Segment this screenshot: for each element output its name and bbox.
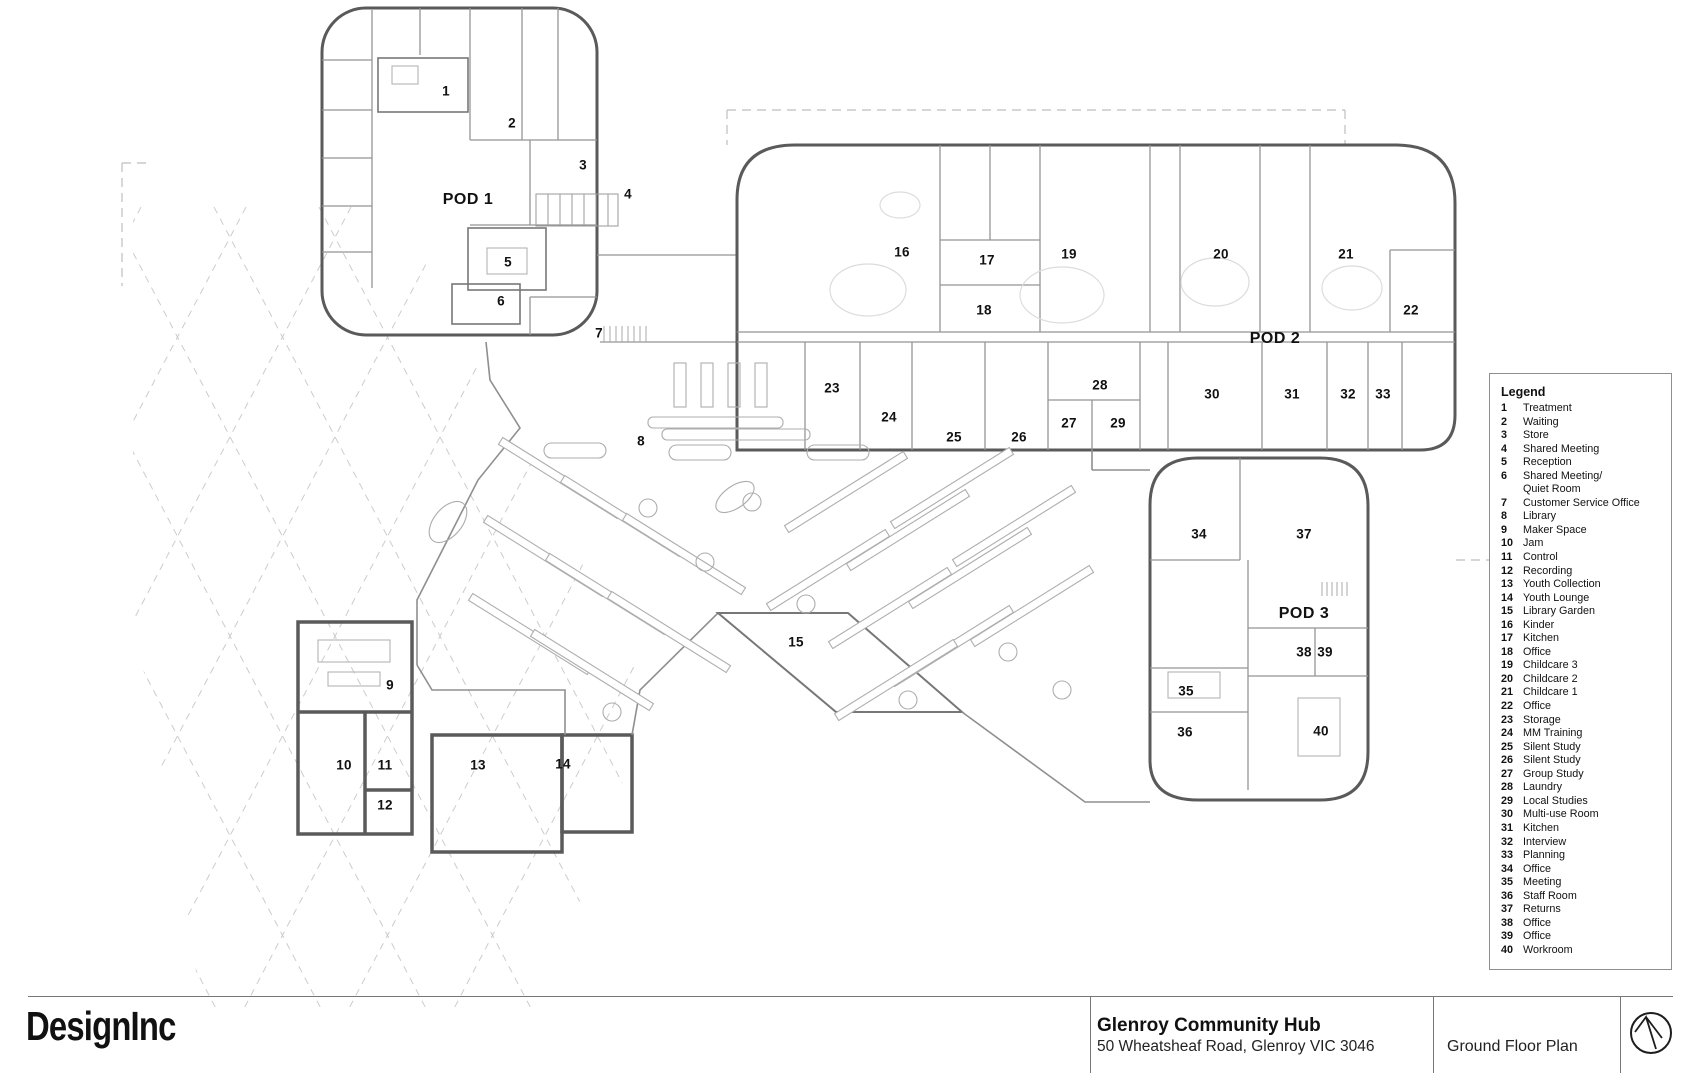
- legend-entry: 12Recording: [1501, 565, 1665, 579]
- legend-entry: 34Office: [1501, 863, 1665, 877]
- room-number-label: 27: [1061, 416, 1076, 431]
- legend-entry-number: 20: [1501, 673, 1523, 687]
- legend-entry: 21Childcare 1: [1501, 686, 1665, 700]
- room-number-label: 7: [595, 326, 603, 341]
- library-shelving: [469, 438, 1094, 721]
- legend-entry: 39Office: [1501, 930, 1665, 944]
- room-number-label: 38: [1296, 645, 1311, 660]
- legend-entry: 5Reception: [1501, 456, 1665, 470]
- room-number-label: 1: [442, 84, 450, 99]
- legend-entry-label: Recording: [1523, 565, 1572, 579]
- room-number-label: 28: [1092, 378, 1107, 393]
- sheet-name: Ground Floor Plan: [1447, 1038, 1578, 1056]
- room-number-label: 20: [1213, 247, 1228, 262]
- legend-entry-number: 27: [1501, 768, 1523, 782]
- room-number-label: 5: [504, 255, 512, 270]
- legend-entry: 27Group Study: [1501, 768, 1665, 782]
- legend-entry: 32Interview: [1501, 836, 1665, 850]
- legend-entry: 6Shared Meeting/ Quiet Room: [1501, 470, 1665, 497]
- room-number-label: 9: [386, 678, 394, 693]
- legend-entry: 1Treatment: [1501, 402, 1665, 416]
- legend-entry-number: 12: [1501, 565, 1523, 579]
- legend-entry-label: Office: [1523, 917, 1551, 931]
- legend-entry-label: Local Studies: [1523, 795, 1588, 809]
- room-number-label: 3: [579, 158, 587, 173]
- room-number-label: 10: [336, 758, 351, 773]
- legend-entry: 9Maker Space: [1501, 524, 1665, 538]
- room-number-label: 23: [824, 381, 839, 396]
- firm-logo: DesignInc: [26, 1003, 176, 1050]
- legend-entry-label: Childcare 3: [1523, 659, 1578, 673]
- room-number-label: 24: [881, 410, 896, 425]
- legend-entry-number: 26: [1501, 754, 1523, 768]
- legend-entry: 38Office: [1501, 917, 1665, 931]
- room-number-label: 25: [946, 430, 961, 445]
- legend-entry-number: 21: [1501, 686, 1523, 700]
- legend-entry-label: Office: [1523, 930, 1551, 944]
- room-number-label: 18: [976, 303, 991, 318]
- legend-entry-number: 15: [1501, 605, 1523, 619]
- legend-entry: 24MM Training: [1501, 727, 1665, 741]
- legend-entry-label: Kitchen: [1523, 822, 1559, 836]
- room-number-label: 39: [1317, 645, 1332, 660]
- room-number-label: 37: [1296, 527, 1311, 542]
- legend-entry-number: 5: [1501, 456, 1523, 470]
- room-number-label: 35: [1178, 684, 1193, 699]
- legend-entry-label: Office: [1523, 646, 1551, 660]
- legend-entry: 33Planning: [1501, 849, 1665, 863]
- legend-entry: 35Meeting: [1501, 876, 1665, 890]
- north-arrow-icon: [1631, 1013, 1671, 1053]
- legend-entry-label: Youth Lounge: [1523, 592, 1589, 606]
- legend-entry-number: 16: [1501, 619, 1523, 633]
- room-number-label: 31: [1284, 387, 1299, 402]
- title-block-rule: [28, 996, 1673, 997]
- legend-entry: 28Laundry: [1501, 781, 1665, 795]
- legend-entry-label: Customer Service Office: [1523, 497, 1640, 511]
- legend-entry: 31Kitchen: [1501, 822, 1665, 836]
- legend-entry-number: 35: [1501, 876, 1523, 890]
- legend-entry-label: Storage: [1523, 714, 1561, 728]
- legend-items: 1Treatment2Waiting3Store4Shared Meeting5…: [1501, 402, 1665, 957]
- legend-entry: 25Silent Study: [1501, 741, 1665, 755]
- legend-entry-label: Control: [1523, 551, 1558, 565]
- room-number-label: 21: [1338, 247, 1353, 262]
- legend-entry-number: 18: [1501, 646, 1523, 660]
- legend-entry-label: Laundry: [1523, 781, 1562, 795]
- legend-entry: 15Library Garden: [1501, 605, 1665, 619]
- room-number-label: 30: [1204, 387, 1219, 402]
- legend-entry-label: Childcare 2: [1523, 673, 1578, 687]
- legend-entry-number: 9: [1501, 524, 1523, 538]
- legend-entry-label: Meeting: [1523, 876, 1561, 890]
- room-number-label: 14: [555, 757, 570, 772]
- legend-entry-number: 2: [1501, 416, 1523, 430]
- pod3-walls: [1150, 458, 1368, 800]
- legend-entry: 37Returns: [1501, 903, 1665, 917]
- meeting-table: [536, 194, 618, 226]
- legend-entry-number: 13: [1501, 578, 1523, 592]
- room-number-label: 4: [624, 187, 632, 202]
- legend-entry-label: Staff Room: [1523, 890, 1577, 904]
- legend-entry-number: 29: [1501, 795, 1523, 809]
- legend-entry-label: Kinder: [1523, 619, 1554, 633]
- room-number-label: 13: [470, 758, 485, 773]
- legend-entry-label: Workroom: [1523, 944, 1573, 958]
- legend-entry-number: 14: [1501, 592, 1523, 606]
- legend-entry-label: Office: [1523, 863, 1551, 877]
- legend-entry-number: 19: [1501, 659, 1523, 673]
- legend-entry: 40Workroom: [1501, 944, 1665, 958]
- legend-entry-number: 8: [1501, 510, 1523, 524]
- legend-entry-label: MM Training: [1523, 727, 1582, 741]
- legend-entry: 7Customer Service Office: [1501, 497, 1665, 511]
- legend-entry-number: 32: [1501, 836, 1523, 850]
- legend-entry-number: 11: [1501, 551, 1523, 565]
- legend-entry-number: 30: [1501, 808, 1523, 822]
- legend-entry: 10Jam: [1501, 537, 1665, 551]
- room-number-label: 29: [1110, 416, 1125, 431]
- project-name: Glenroy Community Hub: [1097, 1015, 1321, 1037]
- legend-entry: 3Store: [1501, 429, 1665, 443]
- room-number-label: 17: [979, 253, 994, 268]
- legend-entry-label: Library Garden: [1523, 605, 1595, 619]
- legend-entry-label: Silent Study: [1523, 754, 1581, 768]
- legend-entry: 2Waiting: [1501, 416, 1665, 430]
- legend-entry: 23Storage: [1501, 714, 1665, 728]
- legend-entry-number: 6: [1501, 470, 1523, 497]
- legend-entry: 19Childcare 3: [1501, 659, 1665, 673]
- legend-entry: 17Kitchen: [1501, 632, 1665, 646]
- legend-entry-label: Office: [1523, 700, 1551, 714]
- legend-entry-label: Planning: [1523, 849, 1565, 863]
- legend-entry-label: Youth Collection: [1523, 578, 1601, 592]
- room-number-label: 8: [637, 434, 645, 449]
- title-block-divider: [1090, 996, 1091, 1073]
- legend-entry-number: 17: [1501, 632, 1523, 646]
- room-number-label: 2: [508, 116, 516, 131]
- room-number-label: 12: [377, 798, 392, 813]
- legend-entry-label: Store: [1523, 429, 1549, 443]
- legend-entry-number: 10: [1501, 537, 1523, 551]
- room-number-label: 11: [378, 758, 393, 773]
- legend-entry-number: 39: [1501, 930, 1523, 944]
- title-block-divider: [1433, 996, 1434, 1073]
- legend-entry: 8Library: [1501, 510, 1665, 524]
- room-number-label: 19: [1061, 247, 1076, 262]
- legend-entry-number: 33: [1501, 849, 1523, 863]
- legend-entry: 13Youth Collection: [1501, 578, 1665, 592]
- legend-entry-number: 37: [1501, 903, 1523, 917]
- entry-link: [536, 194, 737, 342]
- legend-entry: 29Local Studies: [1501, 795, 1665, 809]
- legend-entry-number: 28: [1501, 781, 1523, 795]
- legend-entry-label: Kitchen: [1523, 632, 1559, 646]
- legend-entry-number: 34: [1501, 863, 1523, 877]
- legend-entry-label: Shared Meeting/ Quiet Room: [1523, 470, 1602, 497]
- legend-entry-label: Returns: [1523, 903, 1561, 917]
- floor-plan-drawing: [0, 0, 1700, 1073]
- pod2-walls: [737, 145, 1455, 450]
- room-number-label: 22: [1403, 303, 1418, 318]
- room-number-label: 32: [1340, 387, 1355, 402]
- legend-entry-label: Group Study: [1523, 768, 1584, 782]
- legend-entry-number: 23: [1501, 714, 1523, 728]
- room-number-label: 34: [1191, 527, 1206, 542]
- legend-entry-label: Reception: [1523, 456, 1572, 470]
- legend-entry-number: 31: [1501, 822, 1523, 836]
- legend-entry-number: 22: [1501, 700, 1523, 714]
- legend-title: Legend: [1501, 385, 1665, 399]
- pod1-walls: [322, 8, 597, 335]
- title-block-divider: [1620, 996, 1621, 1073]
- room-number-label: 40: [1313, 724, 1328, 739]
- legend-box: Legend 1Treatment2Waiting3Store4Shared M…: [1489, 373, 1672, 970]
- legend-entry: 22Office: [1501, 700, 1665, 714]
- legend-entry: 20Childcare 2: [1501, 673, 1665, 687]
- concourse-glazing: [417, 342, 1150, 802]
- legend-entry: 4Shared Meeting: [1501, 443, 1665, 457]
- kinder-play-blobs: [830, 192, 1382, 323]
- legend-entry-number: 1: [1501, 402, 1523, 416]
- legend-entry: 11Control: [1501, 551, 1665, 565]
- legend-entry-number: 3: [1501, 429, 1523, 443]
- legend-entry-label: Silent Study: [1523, 741, 1581, 755]
- pod-label: POD 1: [443, 191, 494, 209]
- legend-entry-label: Library: [1523, 510, 1556, 524]
- floor-plan-sheet: 1234567891011121314151617181920212223242…: [0, 0, 1700, 1073]
- pod-label: POD 3: [1279, 605, 1330, 623]
- legend-entry: 16Kinder: [1501, 619, 1665, 633]
- legend-entry-number: 25: [1501, 741, 1523, 755]
- legend-entry-label: Shared Meeting: [1523, 443, 1599, 457]
- legend-entry: 26Silent Study: [1501, 754, 1665, 768]
- room-number-label: 36: [1177, 725, 1192, 740]
- legend-entry: 30Multi-use Room: [1501, 808, 1665, 822]
- project-address: 50 Wheatsheaf Road, Glenroy VIC 3046: [1097, 1038, 1374, 1056]
- legend-entry-label: Treatment: [1523, 402, 1572, 416]
- legend-entry-number: 4: [1501, 443, 1523, 457]
- legend-entry-label: Jam: [1523, 537, 1543, 551]
- legend-entry-number: 38: [1501, 917, 1523, 931]
- legend-entry-number: 36: [1501, 890, 1523, 904]
- legend-entry-label: Interview: [1523, 836, 1566, 850]
- legend-entry: 18Office: [1501, 646, 1665, 660]
- legend-entry-number: 24: [1501, 727, 1523, 741]
- room-number-label: 6: [497, 294, 505, 309]
- legend-entry-label: Maker Space: [1523, 524, 1587, 538]
- legend-entry: 36Staff Room: [1501, 890, 1665, 904]
- legend-entry-number: 40: [1501, 944, 1523, 958]
- legend-entry-label: Waiting: [1523, 416, 1559, 430]
- room-number-label: 15: [788, 635, 803, 650]
- pod-label: POD 2: [1250, 330, 1301, 348]
- legend-entry-label: Multi-use Room: [1523, 808, 1599, 822]
- room-number-label: 33: [1375, 387, 1390, 402]
- room-number-label: 26: [1011, 430, 1026, 445]
- legend-entry: 14Youth Lounge: [1501, 592, 1665, 606]
- legend-entry-number: 7: [1501, 497, 1523, 511]
- southwest-wing-walls: [298, 622, 632, 852]
- legend-entry-label: Childcare 1: [1523, 686, 1578, 700]
- room-number-label: 16: [894, 245, 909, 260]
